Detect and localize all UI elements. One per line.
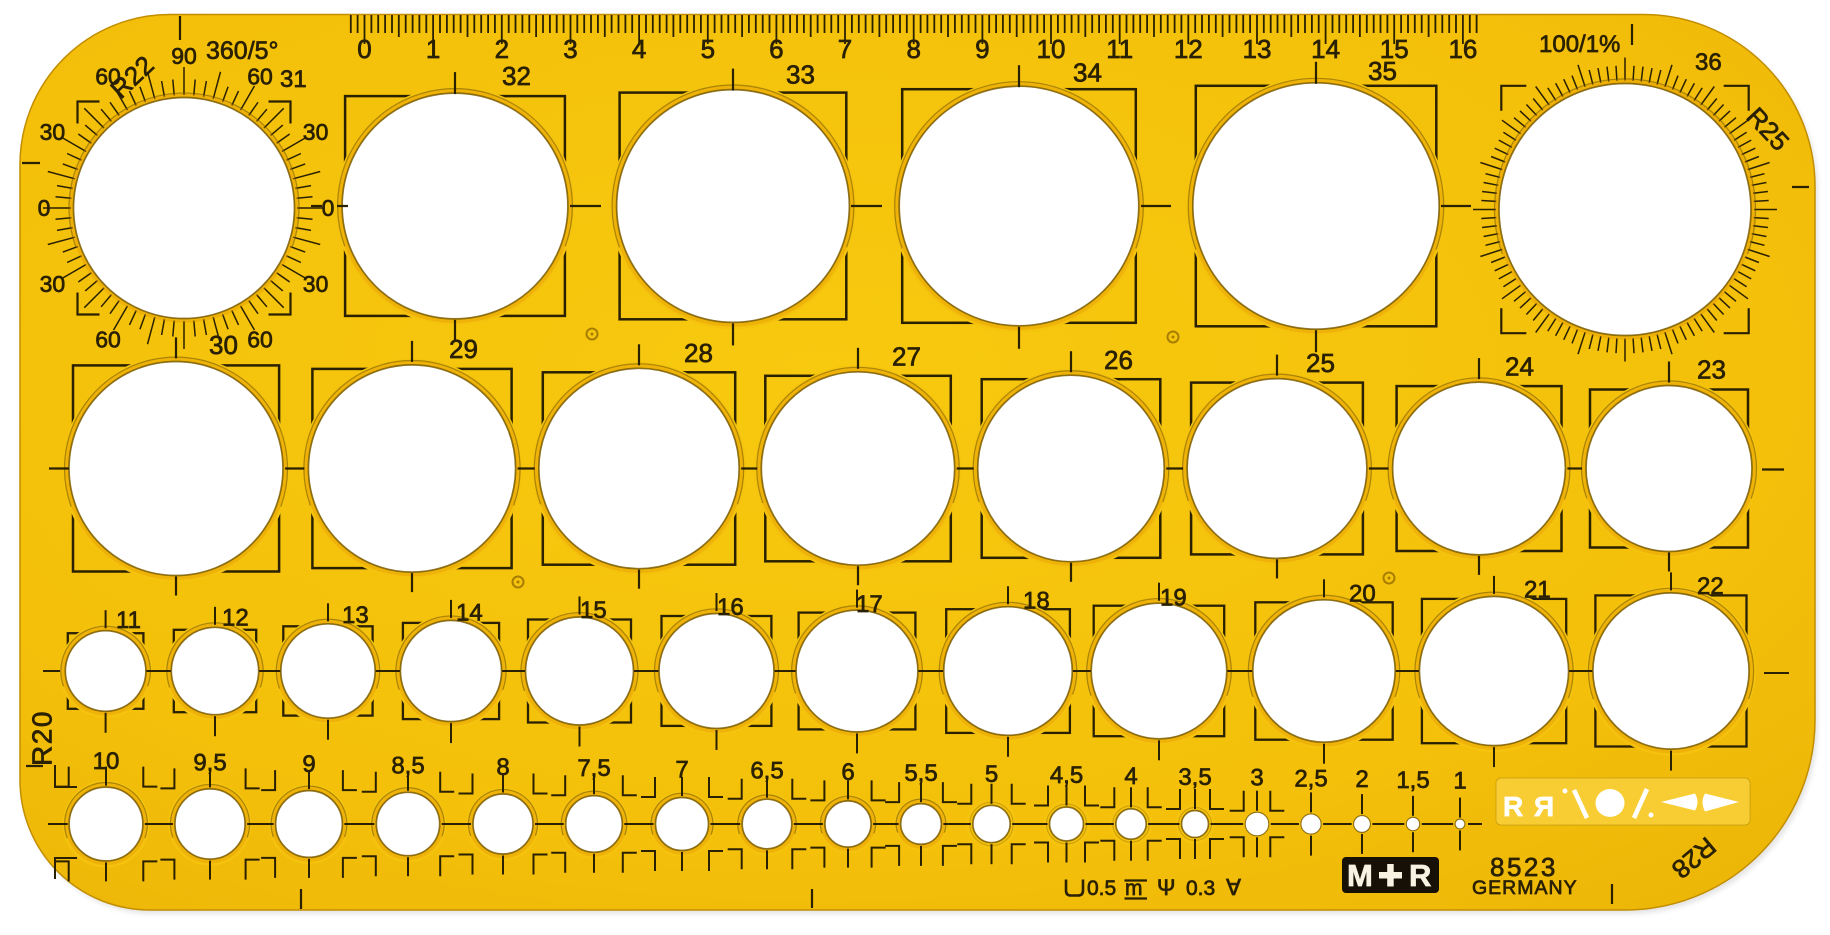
svg-text:11: 11 — [116, 607, 141, 634]
svg-text:9: 9 — [975, 34, 989, 64]
svg-text:13: 13 — [342, 602, 369, 629]
svg-text:6: 6 — [841, 759, 854, 786]
svg-text:9,5: 9,5 — [193, 750, 226, 777]
svg-text:16: 16 — [1448, 34, 1477, 64]
svg-text:100/1%: 100/1% — [1539, 31, 1620, 58]
svg-text:2: 2 — [1355, 766, 1368, 793]
svg-text:4: 4 — [1124, 763, 1137, 790]
svg-text:3,5: 3,5 — [1178, 764, 1211, 791]
svg-text:90: 90 — [171, 43, 197, 69]
svg-text:5: 5 — [985, 761, 998, 788]
svg-text:Я: Я — [1534, 791, 1554, 822]
svg-text:1: 1 — [1453, 768, 1466, 795]
svg-text:∀: ∀ — [1226, 875, 1241, 900]
svg-text:16: 16 — [717, 594, 744, 621]
svg-text:60: 60 — [247, 327, 273, 353]
svg-text:19: 19 — [1160, 585, 1187, 612]
svg-text:18: 18 — [1023, 588, 1050, 615]
svg-text:5: 5 — [701, 34, 715, 64]
svg-text:34: 34 — [1073, 58, 1102, 88]
svg-text:2: 2 — [495, 34, 509, 64]
svg-text:12: 12 — [1174, 34, 1203, 64]
svg-text:R20: R20 — [27, 710, 58, 766]
svg-text:11: 11 — [1106, 34, 1133, 64]
svg-text:60: 60 — [95, 327, 121, 353]
svg-text:5,5: 5,5 — [904, 760, 937, 787]
svg-text:9: 9 — [302, 751, 315, 778]
svg-text:3: 3 — [563, 34, 577, 64]
svg-text:21: 21 — [1524, 577, 1551, 604]
svg-text:20: 20 — [1349, 581, 1376, 608]
svg-text:32: 32 — [502, 61, 531, 91]
svg-text:GERMANY: GERMANY — [1472, 877, 1578, 899]
svg-text:6: 6 — [769, 34, 783, 64]
svg-text:0.3: 0.3 — [1186, 877, 1215, 900]
svg-text:60: 60 — [247, 63, 273, 89]
svg-text:30: 30 — [40, 119, 66, 145]
svg-text:14: 14 — [1311, 34, 1340, 64]
svg-text:0.5: 0.5 — [1087, 877, 1116, 900]
svg-text:2,5: 2,5 — [1294, 766, 1327, 793]
svg-text:3: 3 — [1250, 765, 1263, 792]
svg-text:0: 0 — [38, 195, 51, 221]
svg-text:7: 7 — [675, 756, 688, 783]
svg-text:R: R — [1409, 858, 1431, 893]
svg-text:7,5: 7,5 — [577, 755, 610, 782]
svg-text:0: 0 — [322, 195, 335, 221]
svg-text:33: 33 — [786, 59, 815, 89]
svg-text:4,5: 4,5 — [1050, 762, 1083, 789]
svg-text:15: 15 — [580, 597, 607, 624]
svg-text:10: 10 — [1037, 34, 1066, 64]
svg-text:30: 30 — [303, 119, 329, 145]
svg-text:30: 30 — [303, 271, 329, 297]
svg-text:Ψ: Ψ — [1157, 875, 1175, 900]
svg-text:1,5: 1,5 — [1396, 767, 1429, 794]
svg-text:7: 7 — [838, 34, 852, 64]
svg-text:0: 0 — [357, 34, 371, 64]
svg-text:8: 8 — [496, 754, 509, 781]
svg-text:30: 30 — [40, 271, 66, 297]
svg-text:17: 17 — [856, 591, 883, 618]
svg-text:R: R — [1503, 791, 1523, 822]
svg-text:12: 12 — [222, 605, 249, 632]
svg-text:26: 26 — [1104, 345, 1133, 375]
svg-text:27: 27 — [892, 341, 921, 371]
svg-text:360/5°: 360/5° — [206, 37, 279, 65]
svg-text:25: 25 — [1306, 348, 1335, 378]
svg-text:1: 1 — [426, 34, 440, 64]
svg-text:13: 13 — [1243, 34, 1272, 64]
svg-text:8: 8 — [906, 34, 920, 64]
svg-text:4: 4 — [632, 34, 646, 64]
svg-text:29: 29 — [449, 334, 478, 364]
svg-text:36: 36 — [1695, 49, 1722, 76]
svg-text:31: 31 — [280, 66, 307, 93]
svg-text:23: 23 — [1697, 355, 1726, 385]
svg-text:35: 35 — [1368, 56, 1397, 86]
svg-text:6,5: 6,5 — [750, 758, 783, 785]
svg-text:8,5: 8,5 — [391, 752, 424, 779]
svg-text:30: 30 — [209, 330, 238, 360]
svg-text:22: 22 — [1697, 573, 1724, 600]
svg-text:14: 14 — [456, 600, 483, 627]
svg-text:M: M — [1347, 858, 1373, 893]
svg-text:28: 28 — [684, 338, 713, 368]
svg-text:10: 10 — [93, 748, 120, 775]
svg-text:24: 24 — [1505, 351, 1534, 381]
